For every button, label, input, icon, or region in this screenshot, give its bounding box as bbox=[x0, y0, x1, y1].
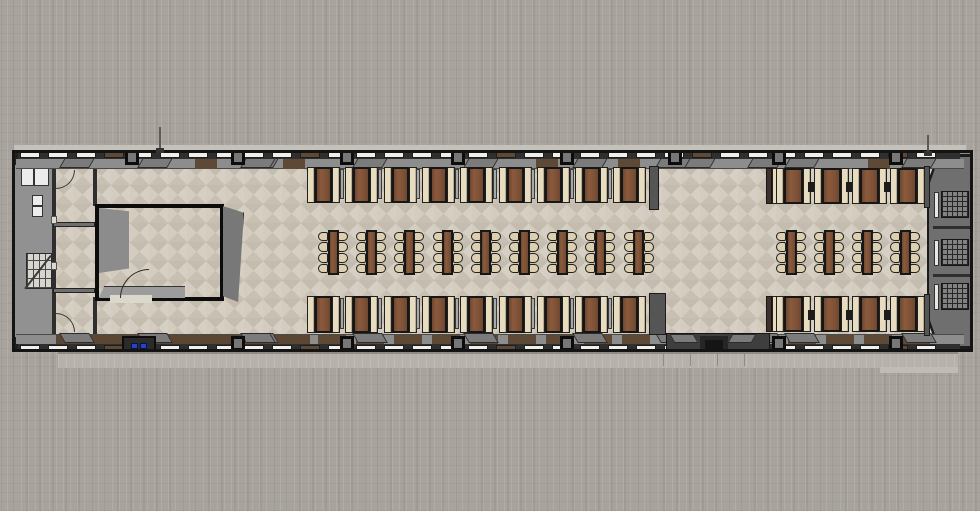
wall-junction-box bbox=[451, 336, 465, 351]
open-window-pane bbox=[901, 158, 937, 168]
floor-plan-scene bbox=[0, 0, 980, 511]
booth-table bbox=[898, 296, 917, 332]
platform-shadow bbox=[58, 352, 958, 368]
booth-table bbox=[353, 296, 370, 333]
booth-bench bbox=[409, 296, 417, 333]
corridor-partition-wall bbox=[53, 222, 95, 227]
open-window-pane bbox=[901, 333, 937, 343]
vestibule-cabinet bbox=[21, 168, 49, 186]
window-segment bbox=[468, 345, 488, 351]
wall-junction-box bbox=[125, 150, 139, 165]
platform-right-step bbox=[880, 367, 958, 373]
booth-table bbox=[784, 296, 803, 332]
dining-table bbox=[557, 230, 568, 275]
booth-bench bbox=[814, 296, 822, 332]
chair bbox=[529, 242, 539, 252]
booth-separator bbox=[531, 298, 535, 329]
chair bbox=[567, 242, 577, 252]
dining-table bbox=[404, 230, 415, 275]
wall-wood-ledge bbox=[864, 335, 892, 344]
booth-separator bbox=[416, 298, 420, 329]
chair bbox=[394, 232, 404, 242]
wall-junction-box bbox=[668, 150, 682, 165]
booth-table bbox=[898, 168, 917, 204]
booth-table bbox=[430, 296, 447, 333]
booth-separator bbox=[455, 298, 459, 329]
chair bbox=[796, 232, 806, 242]
booth-separator bbox=[455, 169, 459, 199]
chair bbox=[644, 264, 654, 274]
booth-separator bbox=[416, 169, 420, 199]
dining-table bbox=[786, 230, 797, 275]
chair bbox=[834, 232, 844, 242]
open-window-pane bbox=[240, 158, 276, 168]
chair bbox=[376, 242, 386, 252]
chair bbox=[814, 264, 824, 274]
dining-table bbox=[366, 230, 377, 275]
wall-junction-box bbox=[451, 150, 465, 165]
open-window-pane bbox=[59, 158, 95, 168]
right-cap-door-strip bbox=[934, 240, 939, 266]
chair bbox=[453, 232, 463, 242]
luggage-grid-panel bbox=[941, 191, 969, 218]
chair bbox=[491, 253, 501, 263]
chair bbox=[318, 232, 328, 242]
wall-junction-box bbox=[340, 336, 354, 351]
chair bbox=[529, 232, 539, 242]
luggage-grid-panel bbox=[941, 239, 969, 266]
fixture-divider bbox=[32, 205, 43, 207]
booth-bench bbox=[332, 296, 340, 333]
window-segment bbox=[384, 345, 404, 351]
booth-bench bbox=[613, 296, 621, 333]
room-left-panel bbox=[99, 208, 129, 273]
chair bbox=[644, 232, 654, 242]
booth-separator bbox=[608, 298, 612, 329]
chair bbox=[796, 242, 806, 252]
wall-wood-ledge bbox=[508, 335, 536, 344]
booth-table bbox=[545, 296, 562, 333]
booth-bench bbox=[917, 296, 925, 332]
chair bbox=[433, 253, 443, 263]
wall-junction-box bbox=[560, 150, 574, 165]
window-segment bbox=[832, 152, 852, 158]
interior-partition-wall bbox=[93, 297, 97, 335]
wall-wood-ledge bbox=[195, 159, 217, 169]
booth-bench bbox=[307, 167, 315, 203]
chair bbox=[644, 253, 654, 263]
chair bbox=[509, 264, 519, 274]
chair bbox=[394, 253, 404, 263]
blue-fixture bbox=[140, 343, 147, 349]
cabinet-divider bbox=[33, 168, 35, 186]
chair bbox=[356, 242, 366, 252]
open-window-pane bbox=[572, 333, 608, 343]
right-cap-shelf-divider bbox=[933, 274, 972, 277]
wall-wood-segment bbox=[496, 345, 516, 351]
chair bbox=[356, 253, 366, 263]
open-window-pane bbox=[352, 333, 388, 343]
chair bbox=[890, 253, 900, 263]
wall-junction-box bbox=[889, 336, 903, 351]
chair bbox=[318, 242, 328, 252]
chair bbox=[338, 242, 348, 252]
booth-bench bbox=[600, 296, 608, 333]
booth-bench bbox=[332, 167, 340, 203]
chair bbox=[814, 242, 824, 252]
booth-separator bbox=[570, 169, 574, 199]
booth-table bbox=[784, 168, 803, 204]
section-divider-stub bbox=[649, 166, 659, 210]
booth-table bbox=[822, 296, 841, 332]
booth-bench bbox=[776, 168, 784, 204]
dining-table bbox=[595, 230, 606, 275]
chair bbox=[890, 264, 900, 274]
corridor-partition-wall bbox=[53, 288, 95, 293]
chair bbox=[910, 253, 920, 263]
chair bbox=[453, 264, 463, 274]
booth-separator bbox=[340, 169, 344, 199]
booth-bench bbox=[345, 167, 353, 203]
chair bbox=[910, 232, 920, 242]
booth-table bbox=[545, 167, 562, 203]
entry-step bbox=[705, 340, 723, 349]
door-jamb bbox=[51, 216, 57, 224]
chair bbox=[585, 264, 595, 274]
wall-junction-box bbox=[772, 336, 786, 351]
entry-flank-pane bbox=[669, 334, 698, 343]
window-segment bbox=[636, 345, 656, 351]
chair bbox=[318, 264, 328, 274]
booth-separator bbox=[493, 169, 497, 199]
window-segment bbox=[916, 345, 936, 351]
dining-table bbox=[480, 230, 491, 275]
window-segment bbox=[860, 345, 880, 351]
chair bbox=[547, 264, 557, 274]
window-segment bbox=[636, 152, 656, 158]
chair bbox=[509, 232, 519, 242]
window-segment bbox=[188, 345, 208, 351]
chair bbox=[471, 264, 481, 274]
booth-bench bbox=[370, 167, 378, 203]
booth-bench bbox=[460, 167, 468, 203]
wall-junction-box bbox=[340, 150, 354, 165]
chair bbox=[567, 253, 577, 263]
booth-bench bbox=[562, 167, 570, 203]
chair bbox=[796, 253, 806, 263]
chair bbox=[567, 232, 577, 242]
booth-separator bbox=[531, 169, 535, 199]
window-segment bbox=[608, 152, 628, 158]
window-segment bbox=[720, 152, 740, 158]
open-window-pane bbox=[240, 333, 276, 343]
booth-bench bbox=[307, 296, 315, 333]
chair bbox=[547, 253, 557, 263]
booth-separator bbox=[608, 169, 612, 199]
chair bbox=[872, 253, 882, 263]
luggage-grid-panel bbox=[941, 283, 969, 310]
wall-junction-box bbox=[772, 150, 786, 165]
dining-table bbox=[442, 230, 453, 275]
booth-bench bbox=[917, 168, 925, 204]
window-segment bbox=[48, 345, 68, 351]
chair bbox=[776, 242, 786, 252]
chair bbox=[890, 242, 900, 252]
wall-wood-ledge bbox=[283, 159, 305, 169]
wall-wood-ledge bbox=[394, 335, 422, 344]
blue-fixture bbox=[131, 343, 138, 349]
chair bbox=[356, 232, 366, 242]
chair bbox=[338, 232, 348, 242]
wall-wood-ledge bbox=[622, 335, 650, 344]
booth-table bbox=[430, 167, 447, 203]
window-segment bbox=[860, 152, 880, 158]
booth-table bbox=[468, 167, 485, 203]
booth-bench bbox=[575, 167, 583, 203]
booth-bench bbox=[562, 296, 570, 333]
booth-bench bbox=[485, 167, 493, 203]
window-segment bbox=[412, 345, 432, 351]
wall-junction-box bbox=[231, 150, 245, 165]
chair bbox=[872, 232, 882, 242]
chair bbox=[776, 253, 786, 263]
booth-bench bbox=[370, 296, 378, 333]
booth-bench bbox=[600, 167, 608, 203]
chair bbox=[890, 232, 900, 242]
chair bbox=[471, 242, 481, 252]
chair bbox=[834, 253, 844, 263]
window-segment bbox=[804, 345, 824, 351]
window-segment bbox=[160, 345, 180, 351]
chair bbox=[852, 232, 862, 242]
chair bbox=[776, 264, 786, 274]
booth-bench bbox=[422, 296, 430, 333]
dining-table bbox=[824, 230, 835, 275]
right-cap-shelf-divider bbox=[933, 226, 972, 229]
chair bbox=[318, 253, 328, 263]
booth-bench bbox=[776, 296, 784, 332]
chair bbox=[394, 264, 404, 274]
wall-wood-segment bbox=[300, 345, 320, 351]
roof-antenna-base bbox=[924, 151, 932, 156]
chair bbox=[491, 242, 501, 252]
roof-antenna-base bbox=[156, 148, 164, 153]
platform-step-line bbox=[663, 354, 664, 366]
chair bbox=[624, 242, 634, 252]
window-segment bbox=[188, 152, 208, 158]
chair bbox=[547, 232, 557, 242]
window-segment bbox=[356, 345, 376, 351]
chair bbox=[852, 253, 862, 263]
booth-bench bbox=[890, 168, 898, 204]
window-segment bbox=[20, 345, 40, 351]
chair bbox=[433, 264, 443, 274]
booth-bench bbox=[852, 296, 860, 332]
chair bbox=[644, 242, 654, 252]
chair bbox=[852, 242, 862, 252]
chair bbox=[529, 253, 539, 263]
window-segment bbox=[580, 345, 600, 351]
wall-wood-ledge bbox=[826, 335, 854, 344]
booth-bench bbox=[409, 167, 417, 203]
wall-junction-box bbox=[231, 336, 245, 351]
booth-bench bbox=[575, 296, 583, 333]
booth-bench bbox=[447, 167, 455, 203]
chair bbox=[624, 253, 634, 263]
wall-wood-segment bbox=[300, 152, 320, 158]
chair bbox=[509, 242, 519, 252]
window-segment bbox=[524, 152, 544, 158]
booth-separator bbox=[378, 298, 382, 329]
wall-junction-box bbox=[889, 150, 903, 165]
booth-bench bbox=[499, 167, 507, 203]
booth-table bbox=[507, 167, 524, 203]
booth-separator bbox=[378, 169, 382, 199]
wall-junction-box-wide bbox=[122, 336, 156, 351]
window-segment bbox=[76, 345, 96, 351]
booth-bench bbox=[537, 296, 545, 333]
platform-step-line bbox=[690, 354, 691, 366]
chair bbox=[872, 242, 882, 252]
chair bbox=[814, 253, 824, 263]
chair bbox=[585, 232, 595, 242]
booth-table bbox=[822, 168, 841, 204]
chair bbox=[491, 232, 501, 242]
chair bbox=[509, 253, 519, 263]
open-window-pane bbox=[784, 333, 820, 343]
dining-table bbox=[862, 230, 873, 275]
booth-table bbox=[583, 167, 600, 203]
chair bbox=[356, 264, 366, 274]
booth-table bbox=[468, 296, 485, 333]
booth-table bbox=[583, 296, 600, 333]
booth-table bbox=[353, 167, 370, 203]
chair bbox=[910, 242, 920, 252]
right-cap-door-strip bbox=[934, 192, 939, 218]
booth-bench bbox=[638, 167, 646, 203]
chair bbox=[376, 232, 386, 242]
booth-table bbox=[860, 168, 879, 204]
window-segment bbox=[608, 345, 628, 351]
chair bbox=[624, 232, 634, 242]
booth-bench bbox=[890, 296, 898, 332]
dining-table bbox=[328, 230, 339, 275]
window-segment bbox=[244, 345, 264, 351]
window-segment bbox=[832, 345, 852, 351]
booth-table bbox=[392, 296, 409, 333]
booth-bench bbox=[345, 296, 353, 333]
door-jamb bbox=[51, 262, 57, 270]
interior-partition-wall bbox=[93, 166, 97, 206]
dining-table bbox=[900, 230, 911, 275]
chair bbox=[776, 232, 786, 242]
chair bbox=[814, 232, 824, 242]
open-window-pane bbox=[784, 158, 820, 168]
chair bbox=[852, 264, 862, 274]
booth-bench bbox=[814, 168, 822, 204]
booth-table bbox=[621, 167, 638, 203]
booth-bench bbox=[422, 167, 430, 203]
open-window-pane bbox=[137, 158, 173, 168]
booth-table bbox=[315, 296, 332, 333]
booth-bench bbox=[499, 296, 507, 333]
booth-bench bbox=[384, 296, 392, 333]
booth-table bbox=[507, 296, 524, 333]
wall-wood-segment bbox=[104, 152, 124, 158]
dining-table bbox=[519, 230, 530, 275]
chair bbox=[338, 253, 348, 263]
wall-wood-segment bbox=[104, 345, 124, 351]
booth-bench bbox=[460, 296, 468, 333]
chair bbox=[453, 242, 463, 252]
chair bbox=[471, 253, 481, 263]
booth-bench bbox=[638, 296, 646, 333]
chair bbox=[624, 264, 634, 274]
wall-junction-box bbox=[560, 336, 574, 351]
booth-bench bbox=[613, 167, 621, 203]
booth-table bbox=[315, 167, 332, 203]
booth-bench bbox=[384, 167, 392, 203]
window-segment bbox=[524, 345, 544, 351]
platform-step-line bbox=[717, 354, 718, 366]
chair bbox=[433, 232, 443, 242]
open-window-pane bbox=[463, 333, 499, 343]
chair bbox=[471, 232, 481, 242]
section-divider-stub bbox=[649, 293, 666, 335]
booth-bench bbox=[524, 167, 532, 203]
chair bbox=[834, 242, 844, 252]
dining-table bbox=[633, 230, 644, 275]
booth-bench bbox=[524, 296, 532, 333]
window-segment bbox=[412, 152, 432, 158]
booth-separator bbox=[570, 298, 574, 329]
chair bbox=[394, 242, 404, 252]
chair bbox=[585, 242, 595, 252]
booth-bench bbox=[447, 296, 455, 333]
chair bbox=[453, 253, 463, 263]
booth-table bbox=[860, 296, 879, 332]
booth-bench bbox=[537, 167, 545, 203]
booth-bench bbox=[485, 296, 493, 333]
booth-separator bbox=[340, 298, 344, 329]
booth-table bbox=[621, 296, 638, 333]
window-segment bbox=[272, 345, 292, 351]
booth-separator bbox=[493, 298, 497, 329]
booth-bench bbox=[852, 168, 860, 204]
window-segment bbox=[20, 152, 40, 158]
right-cap-door-strip bbox=[934, 284, 939, 310]
chair bbox=[547, 242, 557, 252]
booth-table bbox=[392, 167, 409, 203]
chair bbox=[433, 242, 443, 252]
chair bbox=[491, 264, 501, 274]
open-window-pane bbox=[59, 333, 95, 343]
platform-step-line bbox=[744, 354, 745, 366]
chair bbox=[376, 253, 386, 263]
chair bbox=[585, 253, 595, 263]
